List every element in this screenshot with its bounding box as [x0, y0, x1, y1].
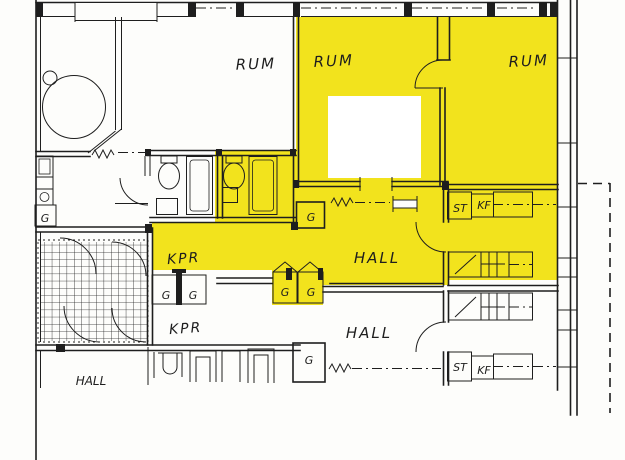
vestibule-door [115, 156, 150, 205]
hinge-cap [172, 269, 186, 273]
bathroom-left [157, 156, 213, 215]
joint [293, 180, 299, 188]
window-sill [558, 58, 577, 367]
joint [290, 149, 296, 156]
door-frame [222, 351, 240, 382]
stair-hatch [38, 238, 148, 342]
joint [442, 182, 449, 190]
pier [487, 2, 495, 17]
label-st-lower: ST [453, 361, 468, 374]
floor-plan-drawing: RUM RUM RUM KPR HALL KPR HALL HALL G G G… [0, 0, 625, 460]
sink-bowl [40, 193, 49, 202]
label-kpr-upper: KPR [167, 250, 201, 268]
cabinet [36, 177, 53, 189]
label-g-kitchen: G [41, 212, 50, 225]
label-kf-lower: KF [477, 364, 491, 377]
closet-pair-white [152, 269, 206, 305]
label-st-upper: ST [453, 202, 468, 215]
label-kpr-lower: KPR [169, 320, 203, 338]
small-round-fixture [43, 71, 57, 85]
label-g-white-left: G [162, 289, 171, 302]
pier [188, 2, 196, 17]
hinge-post [286, 268, 292, 280]
white-patch [328, 96, 421, 178]
label-room-left: RUM [235, 54, 276, 73]
hinge-post [318, 268, 323, 280]
joint [216, 149, 222, 156]
dashed-boundary [578, 183, 610, 413]
label-hall-upper: HALL [354, 249, 400, 267]
label-g-white-right: G [189, 289, 198, 302]
label-g-yellow-right: G [307, 286, 316, 299]
label-g-lower-right: G [305, 354, 314, 367]
hinge-post [176, 271, 182, 305]
joint [145, 224, 152, 233]
label-g-hall-upper: G [307, 211, 316, 224]
door-frame [248, 349, 274, 383]
pier [293, 2, 300, 17]
bathtub-inner [190, 160, 209, 211]
bottom-door-frames [148, 347, 274, 385]
door-arc [416, 322, 446, 352]
pier [56, 344, 65, 352]
fixture-frame [158, 353, 182, 377]
label-room-middle: RUM [313, 51, 354, 71]
label-g-yellow-left: G [281, 286, 290, 299]
door-frame [190, 351, 216, 382]
door-jamb [148, 347, 154, 385]
radiator-squiggle [329, 364, 351, 372]
wall-line [36, 345, 300, 351]
radiator-squiggle [92, 150, 114, 158]
washbasin [157, 199, 178, 215]
cabinet-inner [39, 159, 50, 174]
pier [404, 2, 412, 17]
pier [236, 2, 244, 17]
label-hall-bottom-left: HALL [76, 374, 107, 388]
toilet-tank [161, 156, 177, 163]
label-hall-lower: HALL [346, 324, 392, 342]
pier [36, 2, 43, 17]
label-room-right: RUM [508, 51, 549, 71]
pier [539, 2, 547, 17]
hatch-fill [40, 242, 147, 341]
cabinet-detail [455, 293, 509, 320]
door-leaf [393, 200, 417, 208]
sink-unit [36, 189, 53, 205]
toilet [159, 163, 180, 189]
floor-plan: RUM RUM RUM KPR HALL KPR HALL HALL G G G… [0, 0, 625, 460]
label-kf-upper: KF [477, 199, 491, 212]
